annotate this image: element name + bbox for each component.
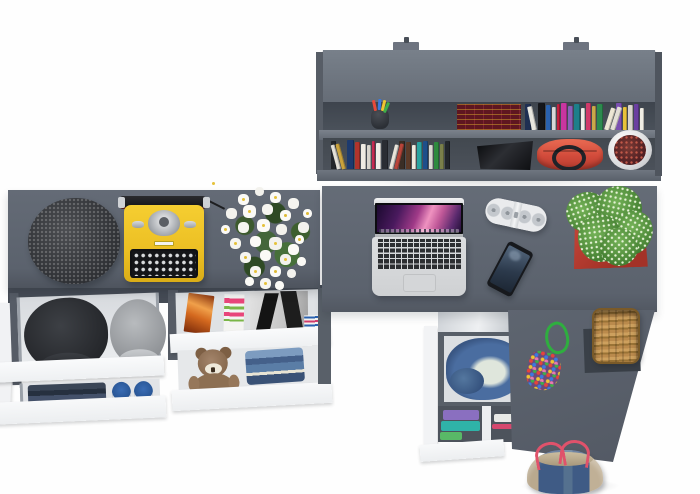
planter-plant xyxy=(614,135,646,165)
laptop-screen xyxy=(375,203,463,234)
book-spine xyxy=(417,142,422,169)
book-spine xyxy=(561,103,567,130)
book-spine xyxy=(372,141,375,169)
book-spine xyxy=(538,103,545,130)
typewriter xyxy=(118,192,210,284)
platen-knob xyxy=(118,197,125,208)
book-spine xyxy=(376,143,381,169)
pencil-icon xyxy=(372,100,377,111)
book-spine xyxy=(623,107,627,130)
folded-shirt-teal xyxy=(441,421,480,431)
book-spine xyxy=(568,106,573,130)
teddy-mouth xyxy=(211,367,215,372)
book-spine xyxy=(367,145,371,169)
daisy-centers xyxy=(212,182,215,185)
book-spine xyxy=(440,144,444,169)
wall-shelf xyxy=(316,42,662,182)
book-spine xyxy=(361,144,366,169)
typewriter-label xyxy=(154,241,174,246)
shelf-row-upper xyxy=(323,102,655,132)
book-spine xyxy=(552,107,556,130)
handbag-handle xyxy=(552,145,586,171)
book-spine xyxy=(634,104,639,130)
book-spine xyxy=(640,108,644,130)
laptop-dock xyxy=(379,229,459,233)
mount-hook-icon xyxy=(574,37,579,43)
pencil-cup xyxy=(371,108,389,129)
shelf-bottom-edge xyxy=(317,170,661,181)
black-device xyxy=(477,141,533,170)
book-spine xyxy=(628,105,633,130)
knit-beanie xyxy=(28,198,120,284)
speaker-clasp xyxy=(509,201,522,228)
laptop xyxy=(372,198,466,298)
handbag-seam xyxy=(543,150,597,152)
book-spine xyxy=(429,145,433,169)
drawer-unit-left xyxy=(0,293,168,425)
book-spine xyxy=(347,140,354,169)
books-lower xyxy=(331,140,450,169)
drawer-unit-middle xyxy=(168,288,334,414)
laptop-trackpad xyxy=(403,274,436,292)
silhouette xyxy=(280,291,304,332)
typewriter-body xyxy=(124,205,204,282)
mount-hook-icon xyxy=(404,37,409,43)
book-spine xyxy=(434,142,439,169)
book-spine xyxy=(597,104,603,130)
silhouette xyxy=(255,293,279,332)
shelf-top-face xyxy=(316,50,662,104)
shelf-side-left xyxy=(316,52,323,174)
book-spine xyxy=(406,142,411,169)
book-spine xyxy=(592,106,596,130)
book-spine xyxy=(557,104,560,130)
shelf-divider xyxy=(482,406,491,442)
ribbon-lever xyxy=(132,221,144,228)
shelf-side-right xyxy=(655,52,662,176)
type-basket xyxy=(148,210,180,236)
book-set-red xyxy=(457,104,521,130)
books-upper xyxy=(525,103,644,130)
denim-fold xyxy=(450,368,484,394)
book-spine xyxy=(546,105,551,130)
laptop-wallpaper xyxy=(377,205,461,232)
book-spine xyxy=(574,104,580,130)
scene-desk-render xyxy=(0,0,700,494)
laptop-body xyxy=(372,237,466,296)
speaker-button xyxy=(513,212,518,219)
typewriter-keys xyxy=(130,249,198,278)
magazine-orange xyxy=(184,293,215,335)
book-spine xyxy=(382,140,388,169)
wicker-basket xyxy=(592,308,640,364)
flower-leaves xyxy=(216,186,312,290)
book-spine xyxy=(423,141,428,169)
magazine-text xyxy=(224,294,245,332)
platen-knob xyxy=(203,197,210,208)
book-spine xyxy=(586,103,591,130)
jeans-stack xyxy=(245,347,305,385)
drawer-side-panel xyxy=(424,326,437,454)
ribbon-spool xyxy=(159,217,169,227)
book-spine xyxy=(581,108,585,130)
ribbon-lever xyxy=(184,221,196,228)
book-spine xyxy=(355,142,360,169)
laptop-keyboard xyxy=(377,239,461,270)
white-planter xyxy=(608,130,652,170)
folded-shirt-purple xyxy=(443,410,479,420)
magazine-bw xyxy=(250,291,308,333)
book-spine xyxy=(412,145,416,169)
red-handbag xyxy=(537,139,603,170)
book-spine xyxy=(445,141,450,169)
folded-shirt-green xyxy=(440,432,462,440)
